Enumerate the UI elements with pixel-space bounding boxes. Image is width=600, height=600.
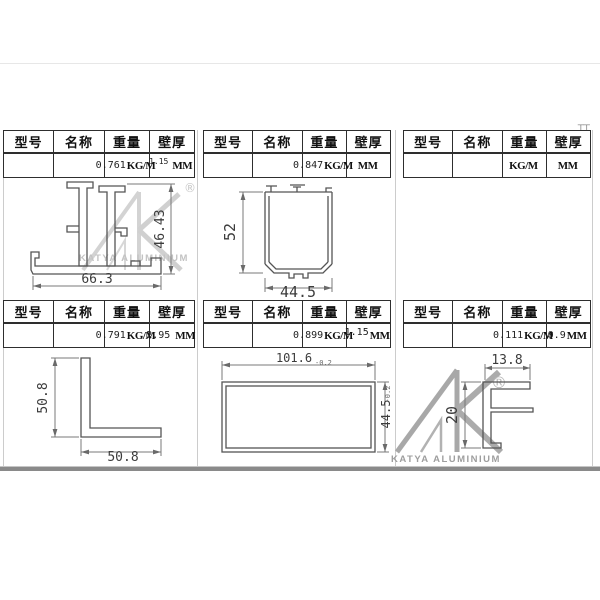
dim-height-label: 52 — [221, 223, 239, 241]
dim-height-label: 44.5 — [379, 400, 393, 429]
col-header-weight: 重量 — [503, 131, 548, 154]
weight-value: 0.899 — [293, 330, 323, 341]
model-cell — [4, 154, 54, 177]
col-header-name: 名称 — [253, 301, 302, 324]
dim-width-label: 101.6 — [276, 351, 312, 365]
dim-width-label: 13.8 — [491, 353, 522, 368]
col-header-weight: 重量 — [105, 301, 151, 324]
profile-catalog-page: 田 ⊤⊤ 型号 名称 重量 壁厚 0.761KG/M 1.15MM 型号 名称 … — [0, 0, 600, 600]
dimension-top: 101.6 -0.2 — [222, 351, 375, 380]
weight-value: 0.761 — [96, 160, 126, 171]
weight-cell: 0.791KG/M — [105, 324, 151, 347]
dimension-bottom: 66.3 — [33, 272, 161, 290]
weight-value: 0.791 — [96, 330, 126, 341]
dimension-side: 50.8 — [36, 358, 79, 437]
weight-cell: 0.761KG/M — [105, 154, 151, 177]
thickness-cell: 1.15MM — [347, 324, 390, 347]
model-cell — [4, 324, 54, 347]
dim-width-tolerance: -0.2 — [315, 359, 332, 367]
weight-unit: KG/M — [509, 160, 538, 172]
dim-width-label: 50.8 — [107, 450, 138, 465]
thickness-unit: MM — [370, 330, 390, 342]
weight-cell: 0.899KG/M — [303, 324, 348, 347]
model-cell — [404, 154, 453, 177]
col-header-name: 名称 — [54, 131, 104, 154]
col-header-thickness: 壁厚 — [150, 301, 194, 324]
spec-table-top-middle: 型号 名称 重量 壁厚 0.847KG/M MM — [203, 130, 391, 178]
profile-linework — [265, 185, 332, 278]
model-cell — [204, 324, 253, 347]
thickness-unit: MM — [172, 160, 192, 172]
thickness-unit: MM — [358, 160, 378, 172]
thickness-unit: MM — [558, 160, 578, 172]
col-header-weight: 重量 — [503, 301, 548, 324]
col-header-model: 型号 — [4, 301, 54, 324]
drawing-f-profile: KATYA ALUMINIUM ® 13.8 20 — [395, 348, 593, 466]
spec-table-bottom-right: 型号 名称 重量 壁厚 0.111KG/M 0.9MM — [403, 300, 591, 348]
col-header-name: 名称 — [253, 131, 302, 154]
col-header-model: 型号 — [404, 301, 453, 324]
col-header-weight: 重量 — [303, 301, 348, 324]
watermark-brand-text: KATYA ALUMINIUM — [79, 253, 189, 264]
thickness-unit: MM — [175, 330, 195, 342]
thickness-cell: MM — [547, 154, 590, 177]
thickness-value: 1.15 — [345, 327, 369, 338]
thickness-cell: 1.15MM — [150, 154, 194, 177]
thickness-value: 0.9 — [548, 330, 566, 341]
profile-linework — [81, 358, 161, 437]
dimension-bottom: 50.8 — [81, 439, 161, 465]
col-header-model: 型号 — [404, 131, 453, 154]
weight-cell: 0.111KG/M — [503, 324, 548, 347]
dim-height-label: 50.8 — [36, 382, 51, 413]
spec-table-bottom-left: 型号 名称 重量 壁厚 0.791KG/M 2.95MM — [3, 300, 195, 348]
col-header-thickness: 壁厚 — [150, 131, 194, 154]
dimension-side: 44.5 -0.2 — [377, 382, 393, 452]
thickness-value: 1.15 — [149, 157, 168, 166]
thickness-cell: 0.9MM — [547, 324, 590, 347]
name-cell — [453, 154, 502, 177]
col-header-thickness: 壁厚 — [547, 131, 590, 154]
dim-width-label: 66.3 — [81, 272, 112, 287]
col-header-thickness: 壁厚 — [547, 301, 590, 324]
col-header-name: 名称 — [453, 131, 502, 154]
col-header-model: 型号 — [4, 131, 54, 154]
thickness-unit: MM — [567, 330, 587, 342]
weight-value: 0.847 — [293, 160, 323, 171]
col-header-name: 名称 — [453, 301, 502, 324]
watermark-logo: KATYA ALUMINIUM ® — [79, 181, 196, 270]
registered-mark-icon: ® — [184, 181, 196, 195]
spec-table-bottom-middle: 型号 名称 重量 壁厚 0.899KG/M 1.15MM — [203, 300, 391, 348]
col-header-model: 型号 — [204, 131, 253, 154]
col-header-name: 名称 — [54, 301, 104, 324]
drawing-angle-profile: 50.8 50.8 — [3, 348, 197, 466]
crop-top-line — [0, 63, 600, 64]
weight-value: 0.111 — [493, 330, 523, 341]
drawing-frame-profile: KATYA ALUMINIUM ® 66.3 46.43 — [3, 178, 197, 298]
watermark-brand-text: KATYA ALUMINIUM — [391, 454, 501, 465]
dimension-side: 52 — [221, 192, 263, 273]
drawing-tube-profile: 52 44.5 — [197, 178, 395, 298]
model-cell — [404, 324, 453, 347]
dim-width-label: 44.5 — [280, 283, 316, 301]
spec-table-top-right: 型号 名称 重量 壁厚 KG/M MM — [403, 130, 591, 178]
weight-cell: 0.847KG/M — [303, 154, 348, 177]
col-header-weight: 重量 — [105, 131, 151, 154]
profile-linework — [222, 382, 375, 452]
thickness-value: 2.95 — [146, 330, 170, 341]
drawing-rect-tube: 101.6 -0.2 44.5 -0.2 — [197, 348, 395, 466]
thickness-cell: 2.95MM — [150, 324, 194, 347]
dim-height-tolerance: -0.2 — [384, 386, 392, 403]
dim-height-label: 20 — [443, 406, 461, 424]
dimension-bottom: 44.5 — [265, 278, 332, 301]
col-header-thickness: 壁厚 — [347, 301, 390, 324]
weight-cell: KG/M — [503, 154, 548, 177]
spec-table-top-left: 型号 名称 重量 壁厚 0.761KG/M 1.15MM — [3, 130, 195, 178]
profile-linework — [483, 382, 533, 448]
page-bottom-border — [0, 466, 600, 471]
thickness-cell: MM — [347, 154, 390, 177]
col-header-thickness: 壁厚 — [347, 131, 390, 154]
dim-height-label: 46.43 — [153, 209, 168, 248]
col-header-weight: 重量 — [303, 131, 348, 154]
model-cell — [204, 154, 253, 177]
col-header-model: 型号 — [204, 301, 253, 324]
